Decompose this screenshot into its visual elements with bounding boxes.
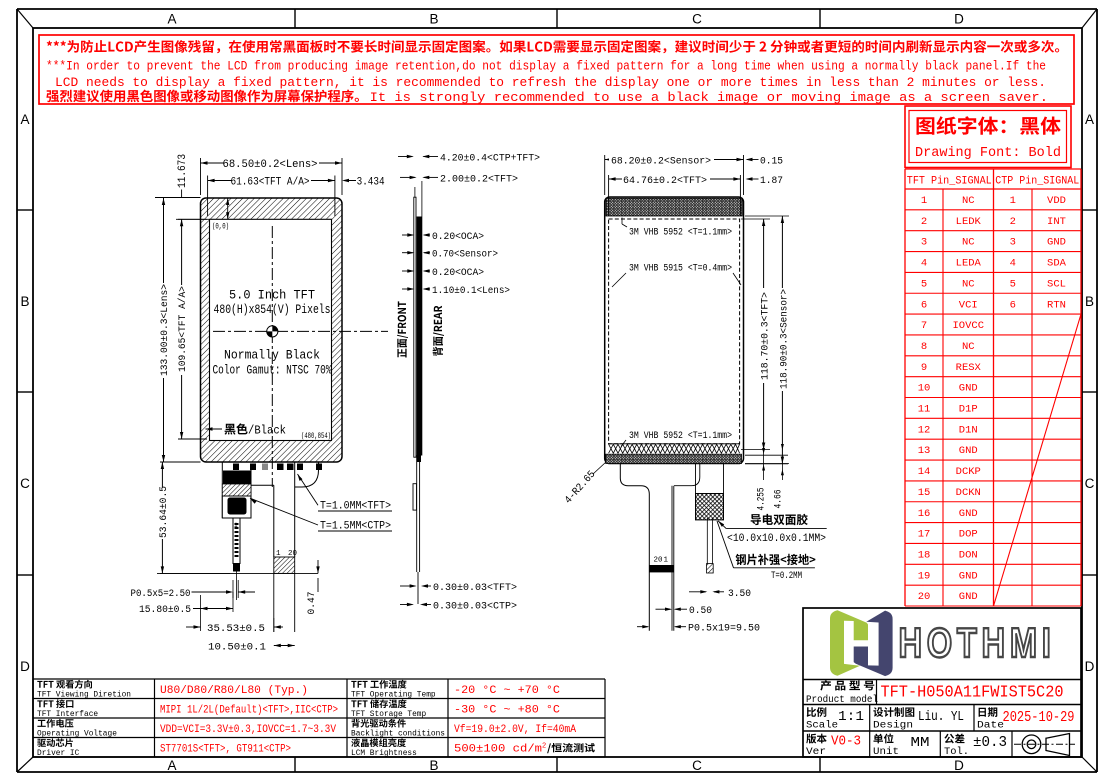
svg-text:T=1.0MM<TFT>: T=1.0MM<TFT> <box>320 501 391 513</box>
svg-text:11: 11 <box>918 404 931 416</box>
svg-text:A: A <box>167 758 176 773</box>
svg-text:Color Gamut: NTSC 70%: Color Gamut: NTSC 70% <box>213 363 332 378</box>
svg-text:1.10±0.1<Lens>: 1.10±0.1<Lens> <box>432 285 510 297</box>
svg-text:-20 °C ~ +70 °C: -20 °C ~ +70 °C <box>454 685 560 697</box>
svg-text:Date: Date <box>977 721 1004 732</box>
svg-text:3: 3 <box>921 237 927 249</box>
svg-text:LEDK: LEDK <box>956 216 982 228</box>
svg-text:P0.5x5=2.50: P0.5x5=2.50 <box>131 588 191 600</box>
svg-text:B: B <box>1085 294 1094 309</box>
svg-text:118.90±0.3<Sensor>: 118.90±0.3<Sensor> <box>779 289 791 389</box>
svg-text:3M VHB 5952 <T=1.1mm>: 3M VHB 5952 <T=1.1mm> <box>629 430 732 442</box>
svg-text:3M VHB 5915 <T=0.4mm>: 3M VHB 5915 <T=0.4mm> <box>629 262 732 274</box>
svg-text:15: 15 <box>918 487 931 499</box>
svg-text:GND: GND <box>959 591 978 603</box>
svg-text:Driver IC: Driver IC <box>37 748 79 758</box>
svg-text:D1P: D1P <box>959 404 978 416</box>
svg-text:7: 7 <box>921 320 927 332</box>
svg-text:0.15: 0.15 <box>760 156 783 168</box>
svg-text:10: 10 <box>918 383 931 395</box>
svg-text:11.673: 11.673 <box>177 154 189 188</box>
svg-text:T=1.5MM<CTP>: T=1.5MM<CTP> <box>320 521 391 533</box>
svg-text:C: C <box>1085 476 1095 491</box>
svg-text:2.00±0.2<TFT>: 2.00±0.2<TFT> <box>440 173 518 185</box>
svg-text:LCM Brightness: LCM Brightness <box>351 748 417 758</box>
svg-text:HOTHMI: HOTHMI <box>899 619 1056 666</box>
svg-text:TFT-H050A11FWIST5C20: TFT-H050A11FWIST5C20 <box>881 684 1064 703</box>
svg-text:-30 °C ~ +80 °C: -30 °C ~ +80 °C <box>454 705 560 717</box>
svg-text:68.50±0.2<Lens>: 68.50±0.2<Lens> <box>223 159 318 171</box>
svg-text:TFT Interface: TFT Interface <box>37 709 98 719</box>
svg-text:Operating Voltage: Operating Voltage <box>37 729 117 739</box>
svg-text:U80/D80/R80/L80 (Typ.): U80/D80/R80/L80 (Typ.) <box>160 685 308 697</box>
svg-text:TFT Viewing Diretion: TFT Viewing Diretion <box>37 690 131 700</box>
svg-text:5: 5 <box>1010 278 1016 290</box>
svg-text:DCKP: DCKP <box>956 466 981 478</box>
svg-text:C: C <box>692 12 702 27</box>
svg-text:RESX: RESX <box>956 362 982 374</box>
svg-text:0.47: 0.47 <box>306 592 318 615</box>
svg-text:/Black: /Black <box>248 424 286 438</box>
svg-text:IOVCC: IOVCC <box>952 320 984 332</box>
svg-text:53.64±0.5: 53.64±0.5 <box>158 486 170 538</box>
svg-text:P0.5x19=9.50: P0.5x19=9.50 <box>688 623 760 635</box>
svg-text:Design: Design <box>873 720 913 732</box>
svg-text:61.63<TFT A/A>: 61.63<TFT A/A> <box>231 177 310 189</box>
svg-text:3M VHB 5952 <T=1.1mm>: 3M VHB 5952 <T=1.1mm> <box>629 227 732 239</box>
svg-text:(0,0): (0,0) <box>212 223 229 232</box>
svg-text:9: 9 <box>921 362 927 374</box>
svg-text:INT: INT <box>1047 216 1066 228</box>
svg-text:GND: GND <box>959 508 978 520</box>
svg-text:118.70±0.3<TFT>: 118.70±0.3<TFT> <box>760 292 772 380</box>
svg-text:17: 17 <box>918 529 931 541</box>
svg-text:12: 12 <box>918 424 931 436</box>
svg-text:D: D <box>954 12 964 27</box>
svg-text:TFT Storage Temp: TFT Storage Temp <box>351 709 426 719</box>
svg-text:MM: MM <box>911 735 930 751</box>
svg-text:±0.3: ±0.3 <box>973 734 1007 751</box>
svg-text:LEDA: LEDA <box>956 258 982 270</box>
svg-text:16: 16 <box>918 508 931 520</box>
svg-text:VDD=VCI=3.3V±0.3,IOVCC=1.7~3.3: VDD=VCI=3.3V±0.3,IOVCC=1.7~3.3V <box>160 724 336 736</box>
svg-text:4.66: 4.66 <box>774 490 785 509</box>
svg-text:18: 18 <box>918 549 931 561</box>
svg-text:LCD needs to display a fixed p: LCD needs to display a fixed pattern, it… <box>55 75 1046 90</box>
svg-text:GND: GND <box>959 570 978 582</box>
svg-text:NC: NC <box>962 278 975 290</box>
svg-text:(480,854): (480,854) <box>301 432 331 441</box>
svg-text:20: 20 <box>654 557 664 565</box>
svg-text:0.20<OCA>: 0.20<OCA> <box>432 231 484 243</box>
svg-text:DOP: DOP <box>959 529 978 541</box>
svg-text:68.20±0.2<Sensor>: 68.20±0.2<Sensor> <box>611 156 711 168</box>
svg-text:1:1: 1:1 <box>838 709 864 725</box>
svg-text:6: 6 <box>921 299 927 311</box>
svg-text:20: 20 <box>918 591 931 603</box>
svg-text:D1N: D1N <box>959 424 978 436</box>
svg-text:14: 14 <box>918 466 931 478</box>
svg-text:T=0.2MM: T=0.2MM <box>771 570 802 582</box>
svg-text:B: B <box>429 12 438 27</box>
svg-text:DON: DON <box>959 549 978 561</box>
svg-text:2: 2 <box>921 216 927 228</box>
svg-text:TFT Operating Temp: TFT Operating Temp <box>351 690 436 700</box>
svg-text:2025-10-29: 2025-10-29 <box>1003 709 1075 726</box>
svg-text:15.80±0.5: 15.80±0.5 <box>139 604 191 616</box>
svg-text:TFT Pin_SIGNAL: TFT Pin_SIGNAL <box>907 176 992 188</box>
svg-text:8: 8 <box>921 341 927 353</box>
svg-text:Product model: Product model <box>806 694 878 706</box>
svg-text:B: B <box>429 758 438 773</box>
svg-text:GND: GND <box>1047 237 1066 249</box>
svg-text:1.87: 1.87 <box>760 175 783 187</box>
svg-text:0.50: 0.50 <box>689 605 712 617</box>
svg-text:***In order to prevent the LCD: ***In order to prevent the LCD from prod… <box>46 59 1046 74</box>
svg-text:RTN: RTN <box>1047 299 1066 311</box>
svg-text:1: 1 <box>663 557 668 565</box>
svg-text:C: C <box>20 476 30 491</box>
svg-text:Ver: Ver <box>806 747 826 758</box>
svg-text:VDD: VDD <box>1047 195 1066 207</box>
svg-text:0.20<OCA>: 0.20<OCA> <box>432 267 484 279</box>
svg-text:4.20±0.4<CTP+TFT>: 4.20±0.4<CTP+TFT> <box>440 153 540 165</box>
svg-text:5: 5 <box>921 278 927 290</box>
svg-text:ST7701S<TFT>, GT911<CTP>: ST7701S<TFT>, GT911<CTP> <box>160 744 291 756</box>
svg-text:C: C <box>692 758 702 773</box>
svg-text:SCL: SCL <box>1047 278 1066 290</box>
svg-text:4: 4 <box>1010 258 1016 270</box>
svg-text:3.50: 3.50 <box>728 588 751 600</box>
svg-text:D: D <box>1085 659 1095 674</box>
svg-text:VCI: VCI <box>959 299 978 311</box>
svg-text:CTP Pin_SIGNAL: CTP Pin_SIGNAL <box>995 176 1079 188</box>
svg-text:GND: GND <box>959 445 978 457</box>
svg-text:0.70<Sensor>: 0.70<Sensor> <box>432 249 498 261</box>
svg-text:V0-3: V0-3 <box>831 734 861 750</box>
svg-text:Scale: Scale <box>806 720 838 732</box>
svg-text:Unit: Unit <box>873 746 899 758</box>
svg-text:NC: NC <box>962 341 975 353</box>
svg-text:D: D <box>954 758 964 773</box>
svg-text:10.50±0.1: 10.50±0.1 <box>208 642 266 654</box>
svg-text:Drawing Font: Bold: Drawing Font: Bold <box>915 146 1061 161</box>
svg-text:Tol.: Tol. <box>944 746 969 758</box>
svg-text:1: 1 <box>921 195 927 207</box>
svg-text:B: B <box>20 294 29 309</box>
svg-text:109.65<TFT A/A>: 109.65<TFT A/A> <box>177 286 189 372</box>
svg-text:13: 13 <box>918 445 931 457</box>
svg-text:Backlight conditions: Backlight conditions <box>351 729 445 739</box>
svg-text:0.30±0.03<CTP>: 0.30±0.03<CTP> <box>433 601 517 613</box>
svg-text:SDA: SDA <box>1047 258 1067 270</box>
svg-text:64.76±0.2<TFT>: 64.76±0.2<TFT> <box>623 175 707 187</box>
svg-text:500±100 cd/m: 500±100 cd/m <box>454 744 542 756</box>
svg-text:2: 2 <box>1010 216 1016 228</box>
svg-text:D: D <box>20 659 30 674</box>
svg-text:0.30±0.03<TFT>: 0.30±0.03<TFT> <box>433 582 517 594</box>
svg-text:A: A <box>1085 112 1094 127</box>
svg-text:MIPI 1L/2L(Default)<TFT>,IIC<C: MIPI 1L/2L(Default)<TFT>,IIC<CTP> <box>160 705 338 717</box>
svg-text:2: 2 <box>542 743 546 751</box>
svg-text:3.434: 3.434 <box>357 177 385 189</box>
svg-text:<10.0x10.0x0.1MM>: <10.0x10.0x0.1MM> <box>727 533 826 545</box>
svg-text:NC: NC <box>962 195 975 207</box>
svg-text:35.53±0.5: 35.53±0.5 <box>207 623 265 635</box>
svg-text:1: 1 <box>1010 195 1016 207</box>
svg-text:6: 6 <box>1010 299 1016 311</box>
svg-text:480(H)x854(V) Pixels: 480(H)x854(V) Pixels <box>214 302 331 317</box>
svg-text:3: 3 <box>1010 237 1016 249</box>
svg-text:4.255: 4.255 <box>757 488 768 511</box>
svg-text:GND: GND <box>959 383 978 395</box>
svg-text:Normally Black: Normally Black <box>224 348 320 363</box>
svg-text:DCKN: DCKN <box>956 487 981 499</box>
svg-text:NC: NC <box>962 237 975 249</box>
svg-text:A: A <box>20 112 29 127</box>
svg-text:It is strongly recommended to: It is strongly recommended to use a blac… <box>370 90 1048 105</box>
svg-text:Liu. YL: Liu. YL <box>918 709 964 725</box>
svg-text:5.0 Inch TFT: 5.0 Inch TFT <box>229 288 315 303</box>
svg-text:A: A <box>167 12 176 27</box>
svg-text:19: 19 <box>918 570 931 582</box>
svg-text:4: 4 <box>921 258 927 270</box>
svg-text:Vf=19.0±2.0V, If=40mA: Vf=19.0±2.0V, If=40mA <box>454 724 576 736</box>
svg-text:133.00±0.3<Lens>: 133.00±0.3<Lens> <box>159 284 171 376</box>
